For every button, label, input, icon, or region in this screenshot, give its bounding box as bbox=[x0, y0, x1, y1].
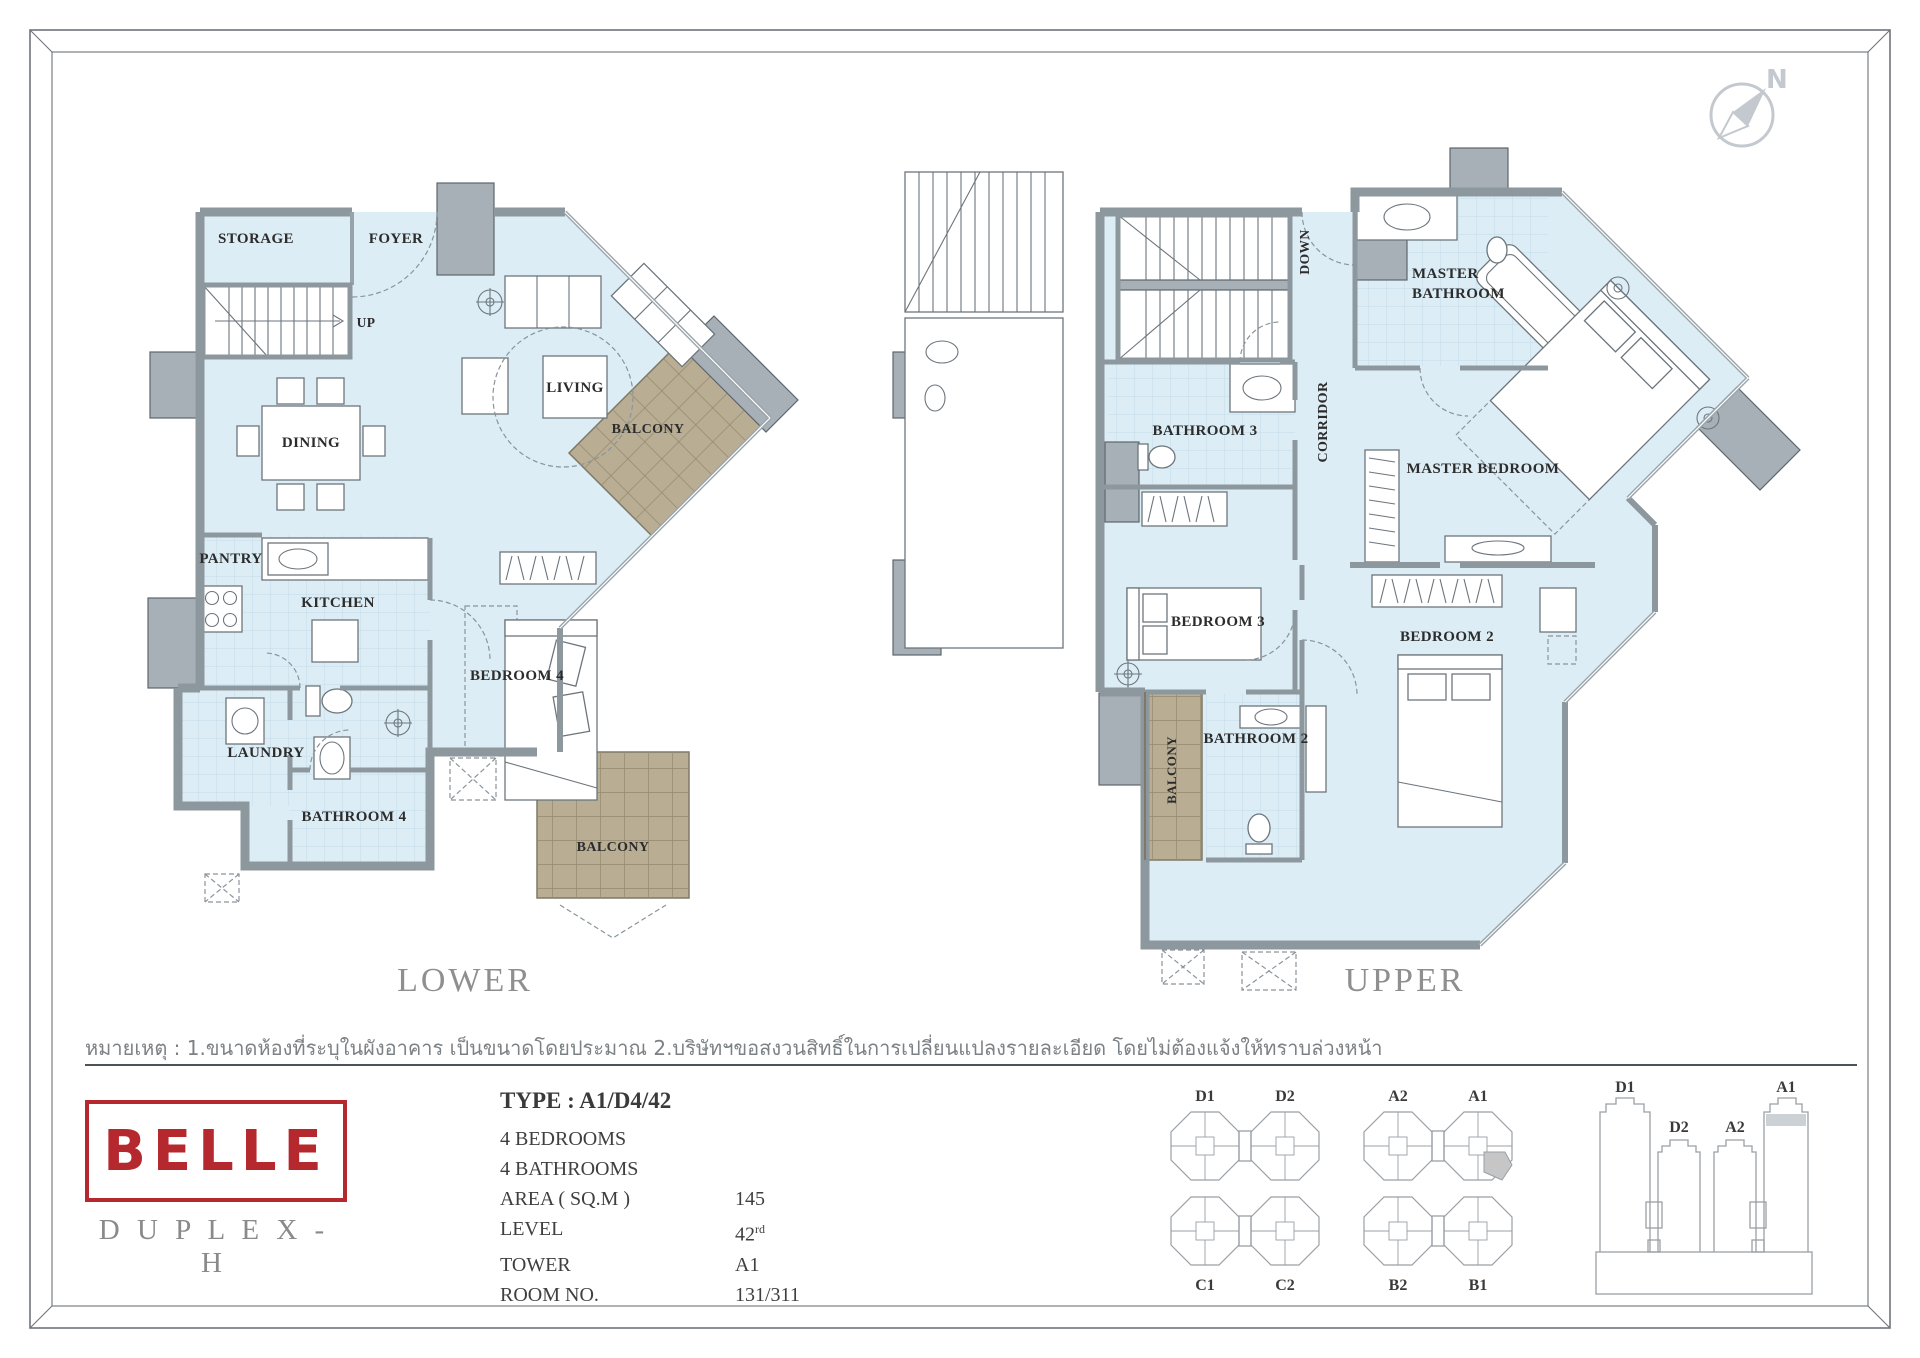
label-living: LIVING bbox=[546, 380, 603, 396]
compass-north-label: N bbox=[1766, 65, 1788, 95]
tower-label: TOWER bbox=[500, 1250, 735, 1280]
label-bathroom-4: BATHROOM 4 bbox=[302, 809, 407, 825]
room-no-label: ROOM NO. bbox=[500, 1280, 735, 1310]
label-corridor: CORRIDOR bbox=[1316, 381, 1331, 462]
level-label: LEVEL bbox=[500, 1214, 735, 1250]
lower-floor-plan: STORAGEFOYERUPDININGLIVINGPANTRYKITCHENB… bbox=[148, 183, 798, 938]
unit-tower-row: TOWER A1 bbox=[500, 1250, 860, 1280]
upper-plan-title: UPPER bbox=[1280, 962, 1530, 1000]
label-c1: C1 bbox=[1195, 1277, 1215, 1294]
belle-logo-text: BELLE bbox=[103, 1119, 329, 1184]
neighbour-core bbox=[905, 172, 1063, 648]
label-b2: B2 bbox=[1389, 1277, 1408, 1294]
label-d1: D1 bbox=[1195, 1088, 1215, 1105]
level-value: 42rd bbox=[735, 1214, 765, 1250]
tower-elevation-diagram: D1D2A2A1 bbox=[1596, 1079, 1812, 1294]
label-down: DOWN bbox=[1297, 229, 1312, 274]
label-storage: STORAGE bbox=[218, 231, 294, 247]
label-balcony: BALCONY bbox=[577, 840, 650, 855]
unit-bedrooms: 4 BEDROOMS bbox=[500, 1124, 860, 1154]
label-a1: A1 bbox=[1776, 1079, 1796, 1096]
label-dining: DINING bbox=[282, 435, 340, 451]
duplex-series-label: D U P L E X - H bbox=[83, 1214, 345, 1280]
label-bedroom-2: BEDROOM 2 bbox=[1400, 629, 1494, 645]
highlighted-level-band bbox=[1766, 1114, 1806, 1126]
label-balcony: BALCONY bbox=[1164, 736, 1179, 804]
unit-area-row: AREA ( SQ.M ) 145 bbox=[500, 1184, 860, 1214]
unit-specs: TYPE : A1/D4/42 4 BEDROOMS 4 BATHROOMS A… bbox=[500, 1088, 860, 1310]
unit-level-row: LEVEL 42rd bbox=[500, 1214, 860, 1250]
label-c2: C2 bbox=[1275, 1277, 1295, 1294]
highlighted-unit-marker bbox=[1484, 1152, 1512, 1180]
label-a2: A2 bbox=[1388, 1088, 1408, 1105]
label-d2: D2 bbox=[1275, 1088, 1295, 1105]
label-balcony: BALCONY bbox=[612, 422, 685, 437]
belle-logo: BELLE bbox=[85, 1100, 347, 1202]
unit-type: TYPE : A1/D4/42 bbox=[500, 1088, 860, 1114]
site-plan-diagram: D1D2A2A1C1C2B2B1 bbox=[1171, 1088, 1512, 1294]
room-no-value: 131/311 bbox=[735, 1280, 800, 1310]
compass-icon: N bbox=[1711, 65, 1788, 146]
area-label: AREA ( SQ.M ) bbox=[500, 1184, 735, 1214]
label-kitchen: KITCHEN bbox=[301, 595, 375, 611]
upper-stairs bbox=[1118, 215, 1290, 360]
upper-floor-plan: DOWNMASTERBATHROOMBATHROOM 3CORRIDORMAST… bbox=[893, 148, 1800, 990]
label-a1: A1 bbox=[1468, 1088, 1488, 1105]
label-d2: D2 bbox=[1669, 1119, 1689, 1136]
disclaimer-note: หมายเหตุ : 1.ขนาดห้องที่ระบุในผังอาคาร เ… bbox=[85, 1032, 1383, 1064]
note-divider bbox=[85, 1064, 1857, 1066]
tower-value: A1 bbox=[735, 1250, 759, 1280]
label-d1: D1 bbox=[1615, 1079, 1635, 1096]
area-value: 145 bbox=[735, 1184, 765, 1214]
label-a2: A2 bbox=[1725, 1119, 1745, 1136]
label-bedroom-3: BEDROOM 3 bbox=[1171, 614, 1265, 630]
label-b1: B1 bbox=[1469, 1277, 1488, 1294]
label-pantry: PANTRY bbox=[199, 551, 262, 567]
label-bathroom-2: BATHROOM 2 bbox=[1204, 731, 1309, 747]
label-laundry: LAUNDRY bbox=[227, 745, 304, 761]
unit-bathrooms: 4 BATHROOMS bbox=[500, 1154, 860, 1184]
label-foyer: FOYER bbox=[369, 231, 424, 247]
label-bathroom-3: BATHROOM 3 bbox=[1153, 423, 1258, 439]
lower-plan-title: LOWER bbox=[340, 962, 590, 1000]
floor-plan-sheet: N bbox=[0, 0, 1920, 1358]
unit-room-row: ROOM NO. 131/311 bbox=[500, 1280, 860, 1310]
label-up: UP bbox=[357, 315, 376, 330]
lower-stairs bbox=[203, 285, 350, 357]
label-bedroom-4: BEDROOM 4 bbox=[470, 668, 564, 684]
label-master-bedroom: MASTER BEDROOM bbox=[1407, 461, 1560, 477]
